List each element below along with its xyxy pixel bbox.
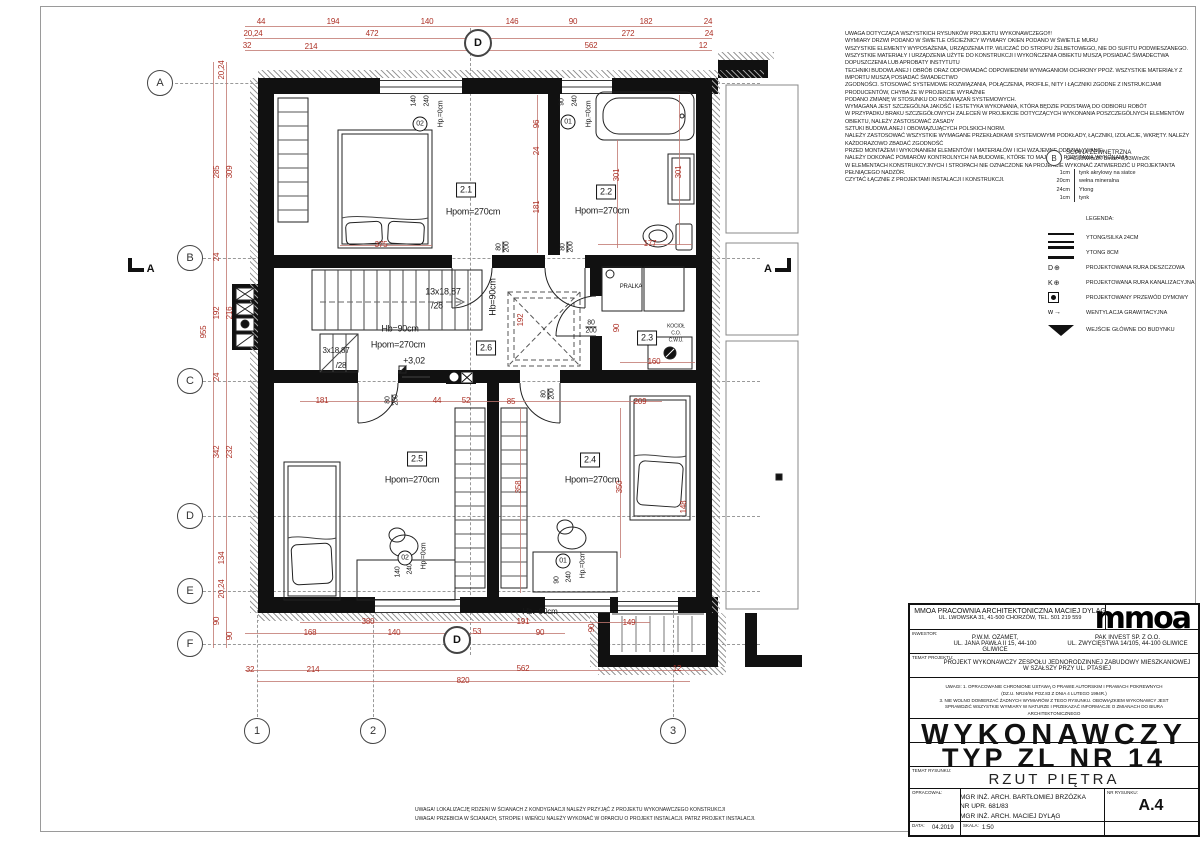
dimension-label: 168 — [304, 629, 317, 637]
dimension-label: 380 — [362, 618, 375, 626]
dimension-label: 375 — [375, 241, 388, 249]
grid-bubble: A — [147, 70, 173, 96]
dimension-label: 24 — [213, 253, 221, 262]
door-size-label: 80200 — [541, 388, 556, 399]
office-name: MMOA PRACOWNIA ARCHITEKTONICZNA MACIEJ D… — [910, 605, 1110, 621]
window-number: 01 — [561, 115, 576, 130]
drawing-title-row: TEMAT RYSUNKU: RZUT PIĘTRA — [910, 767, 1198, 789]
grid-bubble: F — [177, 631, 203, 657]
dimension-label: 96 — [533, 120, 541, 129]
smoke-duct-icon — [1048, 292, 1082, 303]
plan-annotation: Hp.=0cm — [586, 101, 593, 128]
plan-annotation: PRALKA — [620, 284, 642, 290]
dimension-label: 562 — [517, 665, 530, 673]
dimension-label: 181 — [316, 397, 329, 405]
dimension-label: 309 — [226, 166, 234, 179]
remarks-row: UWAGI: 1. OPRACOWANIE CHRONIONE USTAWĄ O… — [910, 678, 1198, 719]
plan-annotation: Hb=90cm — [489, 278, 498, 315]
dimension-label: 24 — [533, 147, 541, 156]
dimension-label: 24 — [705, 30, 714, 38]
room-number: 2.1 — [456, 183, 476, 198]
legend-item: K⊕ PROJEKTOWANA RURA KANALIZACYJNA — [1048, 275, 1198, 290]
plan-annotation: KOCIOŁ — [667, 325, 685, 330]
text-line: WYMIARY DRZWI PODANO W ŚWIETLE OŚCIEŻNIC… — [845, 38, 1197, 45]
floor-plan-graphics — [0, 0, 810, 760]
dimension-label: 285 — [213, 166, 221, 179]
dimension-label: 820 — [457, 677, 470, 685]
sewagepipe-icon: K⊕ — [1048, 279, 1082, 287]
text-line: NR UPR. 681/83 — [960, 802, 1086, 811]
wall-construction-detail: B ŚCIANA ZEWNĘTRZNA U=0,19W/m2K Umax=0,2… — [1046, 150, 1196, 202]
door-size-label: 80200 — [560, 241, 575, 252]
plan-annotation: 13x18,87 — [425, 288, 460, 297]
legend-item: YTONG 8CM — [1048, 245, 1198, 260]
project-row: TEMAT PROJEKTU: PROJEKT WYKONAWCZY ZESPO… — [910, 654, 1198, 678]
dimension-label: 90 — [588, 624, 596, 633]
wall-layer: 20cmwełna mineralna — [1046, 177, 1196, 185]
stage-row: WYKONAWCZY — [910, 719, 1198, 743]
dimension-line — [520, 408, 521, 593]
section-marker-left: A — [128, 258, 155, 275]
dimension-label: 955 — [200, 326, 208, 339]
section-marker-label: A — [147, 263, 155, 275]
wall-layer: 1cmtynk — [1046, 194, 1196, 202]
wall-24cm-icon — [1048, 233, 1082, 243]
investor-1: P.W.M. OZAMET, UL. JANA PAWŁA II 15, 44-… — [940, 635, 1050, 653]
drawing-number: A.4 — [1104, 797, 1198, 815]
drawing-sheet: 44194140146901822420,2447227224322145621… — [0, 0, 1200, 848]
room-number: 2.2 — [596, 185, 616, 200]
plan-annotation: 140 — [395, 566, 402, 577]
investor-label: INWESTOR: — [912, 631, 937, 636]
dimension-label: 301 — [613, 169, 621, 182]
dimension-label: 149 — [623, 619, 636, 627]
room-number: 2.5 — [407, 452, 427, 467]
dimension-label: 12 — [673, 665, 682, 673]
gravity-vent-icon: w→ — [1048, 309, 1082, 316]
dimension-label: 148 — [680, 501, 688, 514]
dimension-label: 44 — [433, 397, 442, 405]
text-line: MGR INŻ. ARCH. MACIEJ DYLĄG — [960, 812, 1086, 821]
plan-annotation: Hpom=270cm — [446, 208, 500, 217]
authors: MGR INŻ. ARCH. BARTŁOMIEJ BRZÓZKANR UPR.… — [960, 793, 1086, 821]
dimension-label: 20,24 — [218, 60, 226, 79]
grid-bubble: D — [464, 29, 492, 57]
text-line: ARCHITEKTONICZNEGO — [910, 711, 1198, 718]
wall-8cm-icon — [1048, 246, 1082, 259]
dimension-line — [245, 633, 565, 634]
grid-bubble: B — [177, 245, 203, 271]
section-marker-label: A — [764, 263, 772, 275]
section-marker-bar — [775, 258, 791, 272]
text-line: UWAGA! PRZEBICIA W ŚCIANACH, STROPIE I W… — [415, 815, 785, 824]
door-size-label: 80200 — [585, 320, 596, 335]
wall-layer: 24cmYtong — [1046, 186, 1196, 194]
divider — [960, 789, 961, 822]
plan-annotation: Hpom=270cm — [371, 341, 425, 350]
grid-bubble: 1 — [244, 718, 270, 744]
date-value: 04.2019 — [932, 825, 954, 831]
door-size-label: 80200 — [385, 394, 400, 405]
investor-2: PAK INVEST SP. Z O.O. UL. ZWYCIĘSTWA 14/… — [1060, 635, 1195, 647]
dimension-label: 472 — [366, 30, 379, 38]
dimension-line — [300, 622, 650, 623]
plan-annotation: Hpom=270cm — [385, 476, 439, 485]
text-line: UWAGA! LOKALIZACJĘ RDZENI W ŚCIANACH Z K… — [415, 806, 785, 815]
plan-annotation: Hp.=0cm — [580, 552, 587, 579]
text-line: WSZYSTKIE MATERIAŁY I URZĄDZENIA UŻYTE D… — [845, 53, 1197, 68]
text-line: ZGODNOŚCI. STOSOWAĆ SYSTEMOWE ROZWIĄZANI… — [845, 82, 1197, 97]
window-number: 02 — [398, 551, 413, 566]
plan-annotation: /28 — [336, 362, 347, 370]
plan-annotation: 140 — [411, 95, 418, 106]
dimension-line — [617, 140, 618, 248]
dimension-label: 301 — [675, 166, 683, 179]
investor-row: INWESTOR: P.W.M. OZAMET, UL. JANA PAWŁA … — [910, 630, 1198, 654]
plan-annotation: Hpom=270cm — [575, 207, 629, 216]
legend-item: YTONG/SILKA 24CM — [1048, 230, 1198, 245]
grid-bubble: C — [177, 368, 203, 394]
date-scale-row: DATA: 04.2019 SKALA: 1:50 — [910, 822, 1198, 835]
plan-annotation: Hp.=0cm — [421, 543, 428, 570]
dimension-label: 134 — [218, 552, 226, 565]
dimension-line — [226, 62, 227, 648]
dimension-line — [257, 681, 690, 682]
dimension-label: 192 — [517, 314, 525, 327]
plan-annotation: /28 — [431, 302, 443, 311]
section-marker-bar — [128, 258, 144, 272]
wall-detail-uvalue: U=0,19W/m2K Umax=0,23W/m2K — [1066, 156, 1150, 162]
dimension-label: 160 — [648, 358, 661, 366]
type-row: TYP ZL NR 14 — [910, 743, 1198, 767]
dimension-label: 140 — [421, 18, 434, 26]
scale-label: SKALA: — [963, 823, 979, 828]
grid-bubble: 3 — [660, 718, 686, 744]
divider — [1105, 605, 1106, 630]
plan-annotation: +3,02 — [403, 357, 425, 366]
drawing-title-label: TEMAT RYSUNKU: — [912, 768, 951, 773]
plan-annotation: 3x18,87 — [322, 347, 349, 355]
dimension-label: 182 — [640, 18, 653, 26]
dimension-label: 85 — [507, 398, 516, 406]
legend-item: PROJEKTOWANY PRZEWÓD DYMOWY — [1048, 290, 1198, 305]
dimension-label: 24 — [704, 18, 713, 26]
dimension-label: 90 — [569, 18, 578, 26]
text-line: W PRZYPADKU BRAKU SZCZEGÓŁOWYCH ZALECEŃ … — [845, 111, 1197, 126]
text-line: NALEŻY ZASTOSOWAĆ WSZYSTKIE WYMAGANE PRZ… — [845, 133, 1197, 148]
dimension-label: 216 — [226, 307, 234, 320]
plan-annotation: 240 — [424, 95, 431, 106]
dimension-label: 20,24 — [218, 579, 226, 598]
grid-bubble: E — [177, 578, 203, 604]
rainpipe-icon: D⊕ — [1048, 264, 1082, 272]
legend: LEGENDA: YTONG/SILKA 24CM YTONG 8CM D⊕ P… — [1048, 216, 1198, 340]
window-number: 01 — [556, 554, 571, 569]
dimension-label: 177 — [644, 240, 657, 248]
wall-detail-marker: B — [1046, 150, 1062, 166]
room-number: 2.6 — [476, 341, 496, 356]
dimension-label: 192 — [213, 307, 221, 320]
dimension-label: 562 — [585, 42, 598, 50]
bottom-warning-notes: UWAGA! LOKALIZACJĘ RDZENI W ŚCIANACH Z K… — [415, 806, 785, 823]
legend-item: D⊕ PROJEKTOWANA RURA DESZCZOWA — [1048, 260, 1198, 275]
dimension-label: 342 — [213, 446, 221, 459]
wall-layer: 1cmtynk akrylowy na siatce — [1046, 169, 1196, 177]
dimension-label: 32 — [246, 666, 255, 674]
title-block: MMOA PRACOWNIA ARCHITEKTONICZNA MACIEJ D… — [908, 603, 1200, 837]
dimension-label: 24 — [213, 373, 221, 382]
drawing-title: RZUT PIĘTRA — [910, 767, 1198, 788]
dimension-line — [245, 26, 712, 27]
dimension-line — [300, 401, 662, 402]
legend-item: w→ WENTYLACJA GRAWITACYJNA — [1048, 305, 1198, 320]
dimension-label: 44 — [257, 18, 266, 26]
dimension-label: 358 — [515, 481, 523, 494]
dimension-label: 12 — [699, 42, 708, 50]
floor-plan: 44194140146901822420,2447227224322145621… — [0, 0, 810, 760]
author-row: OPRACOWAŁ: MGR INŻ. ARCH. BARTŁOMIEJ BRZ… — [910, 789, 1198, 822]
dimension-label: 146 — [506, 18, 519, 26]
dimension-label: 32 — [243, 42, 252, 50]
legend-title: LEGENDA: — [1086, 216, 1198, 222]
plan-annotation: 240 — [572, 95, 579, 106]
date-label: DATA: — [912, 823, 925, 828]
section-marker-right: A — [764, 258, 791, 275]
dimension-label: 214 — [305, 43, 318, 51]
dimension-label: 140 — [388, 629, 401, 637]
dimension-label: 90 — [226, 632, 234, 641]
plan-annotation: Hpom=270cm — [565, 476, 619, 485]
author-label: OPRACOWAŁ: — [912, 790, 942, 795]
room-number: 2.3 — [637, 331, 657, 346]
dimension-label: 232 — [226, 446, 234, 459]
plan-annotation: 90 — [554, 576, 561, 583]
dimension-label: 194 — [327, 18, 340, 26]
text-line: WSZYSTKIE ELEMENTY WYPOSAŻENIA, URZĄDZEN… — [845, 46, 1197, 53]
grid-bubble: D — [177, 503, 203, 529]
dimension-label: 20,24 — [243, 30, 262, 38]
text-line: UWAGI: 1. OPRACOWANIE CHRONIONE USTAWĄ O… — [910, 684, 1198, 691]
plan-annotation: 240 — [407, 563, 414, 574]
dimension-label: 52 — [462, 397, 471, 405]
plan-annotation: Hb.=90cm — [522, 608, 557, 616]
dimension-label: 272 — [622, 30, 635, 38]
plan-annotation: Hb=90cm — [381, 325, 418, 334]
plan-annotation: 90 — [559, 98, 566, 105]
grid-bubble: D — [443, 626, 471, 654]
office-row: MMOA PRACOWNIA ARCHITEKTONICZNA MACIEJ D… — [910, 605, 1198, 630]
dimension-label: 209 — [634, 398, 647, 406]
dimension-label: 90 — [536, 629, 545, 637]
text-line: MGR INŻ. ARCH. BARTŁOMIEJ BRZÓZKA — [960, 793, 1086, 802]
dimension-label: 191 — [517, 618, 530, 626]
plan-annotation: 240 — [566, 571, 573, 582]
scale-value: 1:50 — [982, 825, 994, 831]
dimension-label: 181 — [533, 201, 541, 214]
text-line: SPRAWDZIĆ WSZYSTKIE WYMIARY W NATURZE I … — [910, 704, 1198, 711]
door-size-label: 80200 — [496, 241, 511, 252]
window-number: 02 — [413, 117, 428, 132]
main-entrance-icon — [1048, 325, 1082, 336]
dimension-label: 214 — [307, 666, 320, 674]
dimension-label: 53 — [473, 628, 482, 636]
dimension-label: 90 — [213, 617, 221, 626]
dimension-label: 90 — [613, 324, 621, 333]
divider — [960, 822, 961, 835]
project-label: TEMAT PROJEKTU: — [912, 655, 953, 660]
room-number: 2.4 — [580, 453, 600, 468]
divider — [1104, 822, 1105, 835]
plan-annotation: C.W.U. — [669, 339, 684, 344]
plan-annotation: C.O. — [671, 332, 680, 337]
drawing-number-label: NR RYSUNKU: — [1107, 790, 1138, 795]
dimension-line — [213, 62, 214, 648]
plan-annotation: Hp.=0cm — [438, 101, 445, 128]
grid-bubble: 2 — [360, 718, 386, 744]
text-line: (DZ.U. NR24/94 POZ.83 Z DNIA 4 LUTEGO 19… — [910, 691, 1198, 698]
legend-item: WEJŚCIE GŁÓWNE DO BUDYNKU — [1048, 320, 1198, 340]
text-line: TECHNIKI BUDOWLANEJ I OBRÓB ORAZ ODPOWIA… — [845, 68, 1197, 83]
